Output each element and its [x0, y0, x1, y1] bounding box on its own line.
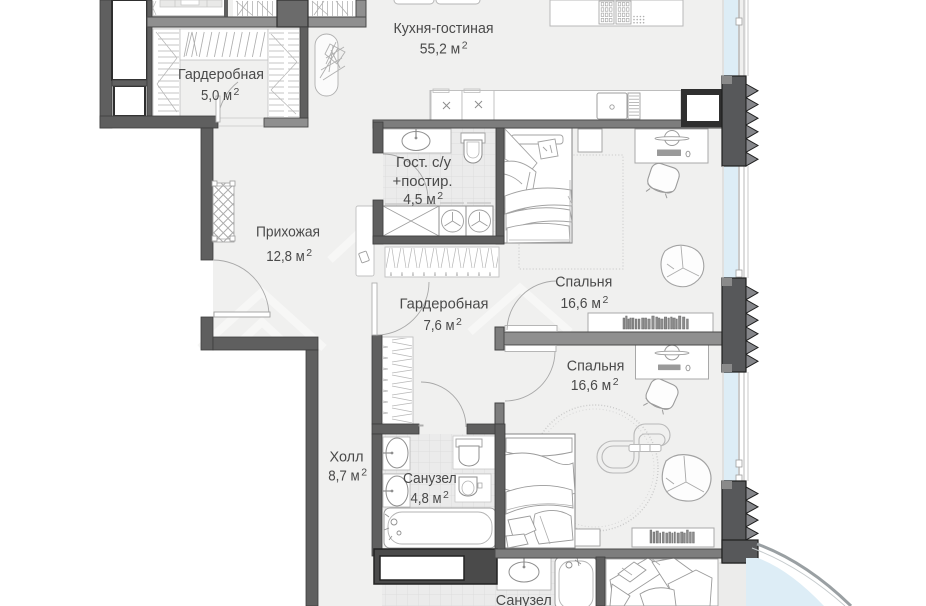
svg-text:Санузел: Санузел	[496, 592, 552, 606]
svg-text:7,6 м: 7,6 м	[424, 317, 455, 334]
svg-text:2: 2	[456, 316, 462, 328]
svg-text:Прихожая: Прихожая	[256, 224, 320, 241]
svg-text:2: 2	[602, 294, 608, 306]
svg-text:55,2 м: 55,2 м	[420, 41, 461, 58]
svg-text:8,7 м: 8,7 м	[328, 468, 360, 485]
svg-text:+постир.: +постир.	[393, 173, 453, 190]
svg-text:2: 2	[361, 467, 367, 479]
svg-text:Спальня: Спальня	[555, 274, 612, 291]
svg-text:Спальня: Спальня	[567, 358, 625, 375]
svg-text:Гардеробная: Гардеробная	[178, 66, 264, 83]
svg-text:12,8 м: 12,8 м	[266, 248, 305, 265]
svg-text:2: 2	[443, 489, 449, 501]
svg-text:Гардеробная: Гардеробная	[400, 296, 489, 313]
svg-text:Гост. с/у: Гост. с/у	[396, 154, 451, 171]
svg-text:4,8 м: 4,8 м	[411, 490, 442, 507]
svg-text:16,6 м: 16,6 м	[560, 295, 601, 312]
svg-text:2: 2	[613, 376, 619, 388]
svg-text:5,0 м: 5,0 м	[201, 87, 232, 104]
svg-text:Кухня-гостиная: Кухня-гостиная	[394, 20, 494, 37]
svg-text:4,5 м: 4,5 м	[403, 191, 436, 208]
svg-text:Холл: Холл	[330, 449, 364, 466]
svg-text:16,6 м: 16,6 м	[571, 377, 612, 394]
svg-text:2: 2	[234, 86, 240, 98]
svg-text:Санузел: Санузел	[403, 470, 457, 487]
svg-text:2: 2	[306, 247, 312, 259]
svg-text:2: 2	[437, 190, 443, 202]
svg-text:2: 2	[462, 40, 468, 52]
